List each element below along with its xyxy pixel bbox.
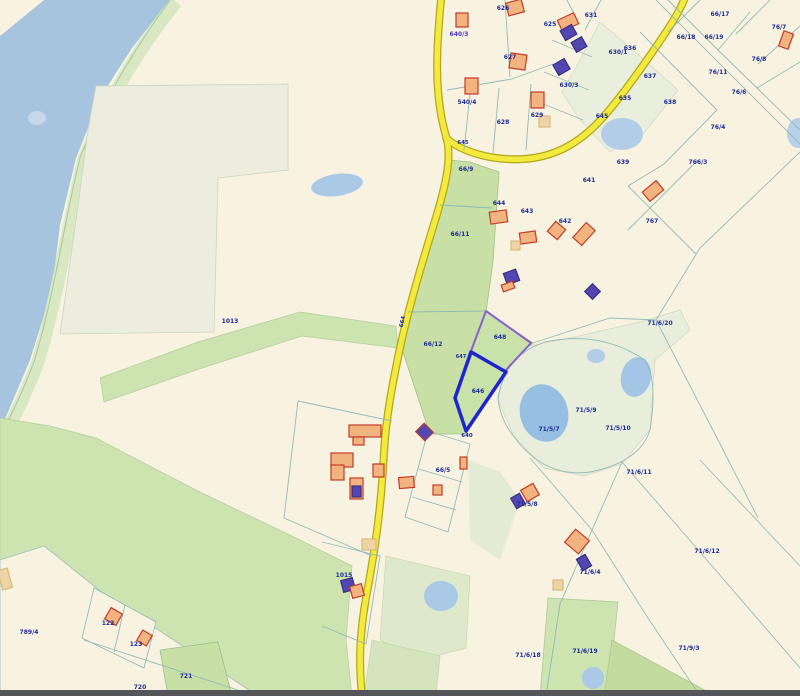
building	[353, 437, 364, 445]
building	[531, 92, 544, 108]
parcel-label-1015: 1015	[336, 572, 353, 579]
parcel-label-646: 646	[472, 388, 485, 395]
parcel-label-71-6-11: 71/6/11	[626, 469, 651, 476]
building	[399, 476, 415, 488]
parcel-label-789-4: 789/4	[20, 629, 39, 636]
parcel-label-645: 645	[596, 113, 609, 120]
parcel-label-630-3: 630/3	[560, 82, 579, 89]
parcel-label-638: 638	[664, 99, 677, 106]
parcel-label-629: 629	[531, 112, 544, 119]
parcel-label-76-6: 76/6	[732, 89, 747, 96]
building	[373, 464, 384, 477]
parcel-label-71-6-18: 71/6/18	[515, 652, 540, 659]
parcel-label-766-3: 766/3	[689, 159, 708, 166]
parcel-label-631: 631	[585, 12, 598, 19]
parcel-label-123: 123	[130, 641, 143, 648]
parcel-label-642: 642	[559, 218, 572, 225]
parcel-label-66-19: 66/19	[705, 34, 724, 41]
parcel-label-71-9-3: 71/9/3	[678, 645, 699, 652]
parcel-label-640: 640	[461, 433, 473, 439]
parcel-label-645: 645	[457, 140, 469, 146]
parcel-label-626: 626	[497, 5, 510, 12]
parcel-label-71-5-10: 71/5/10	[605, 425, 630, 432]
building	[433, 485, 442, 495]
building	[331, 465, 344, 480]
parcel-label-628: 628	[497, 119, 510, 126]
parcel-label-66-11: 66/11	[451, 231, 470, 238]
parcel-label-71-5-8: 71/5/8	[516, 501, 537, 508]
parcel-label-71-6-12: 71/6/12	[694, 548, 719, 555]
parcel-label-640-3: 640/3	[450, 31, 469, 38]
building	[465, 78, 478, 94]
parcel-label-66-18: 66/18	[677, 34, 696, 41]
parcel-label-76-8: 76/8	[752, 56, 767, 63]
parcel-label-71-5-9: 71/5/9	[575, 407, 596, 414]
building	[553, 580, 563, 590]
pond-north	[601, 118, 643, 150]
parcel-label-122: 122	[102, 620, 115, 627]
parcel-label-635: 635	[619, 95, 632, 102]
parcel-label-66-5: 66/5	[436, 467, 451, 474]
building	[460, 457, 467, 469]
parcel-label-721: 721	[180, 673, 193, 680]
parcel-label-66-17: 66/17	[711, 11, 730, 18]
parcel-label-641: 641	[583, 177, 596, 184]
parcel-label-71-5-7: 71/5/7	[538, 426, 559, 433]
parcel-label-71-6-20: 71/6/20	[647, 320, 672, 327]
parcel-label-644: 644	[493, 200, 506, 207]
parcel-label-76-11: 76/11	[709, 69, 728, 76]
parcel-label-627: 627	[504, 54, 517, 61]
parcel-label-639: 639	[617, 159, 630, 166]
parcel-label-643: 643	[521, 208, 534, 215]
map-canvas[interactable]: 626640/3625631630/1630/36366376356456275…	[0, 0, 800, 696]
parcel-label-540-4: 540/4	[458, 99, 477, 106]
parcel-label-647: 647	[456, 354, 467, 360]
parcel-label-71-6-4: 71/6/4	[579, 569, 600, 576]
parcel-label-66-9: 66/9	[459, 166, 474, 173]
pond-south-road	[424, 581, 458, 611]
pond-south	[582, 667, 604, 689]
lake-shallow-mark	[28, 111, 46, 125]
parcel-label-76-7: 76/7	[772, 24, 787, 31]
parcel-label-66-12: 66/12	[424, 341, 443, 348]
parcel-label-720: 720	[134, 684, 147, 691]
parcel-label-767: 767	[646, 218, 659, 225]
parcel-label-1013: 1013	[222, 318, 239, 325]
parcel-label-637: 637	[644, 73, 657, 80]
building	[519, 231, 536, 244]
building	[362, 539, 376, 550]
building	[350, 584, 365, 599]
bottom-edge-bar	[0, 690, 800, 696]
parcel-label-625: 625	[544, 21, 557, 28]
building	[349, 425, 381, 437]
parcel-label-71-6-19: 71/6/19	[572, 648, 597, 655]
parcel-label-636: 636	[624, 45, 637, 52]
building	[511, 241, 520, 250]
building	[352, 486, 361, 497]
building	[489, 210, 508, 224]
parcel-label-648: 648	[494, 334, 507, 341]
building	[456, 13, 468, 27]
parcel-label-76-4: 76/4	[711, 124, 726, 131]
map-viewport: 626640/3625631630/1630/36366376356456275…	[0, 0, 800, 696]
pond-small-mid	[587, 349, 605, 363]
